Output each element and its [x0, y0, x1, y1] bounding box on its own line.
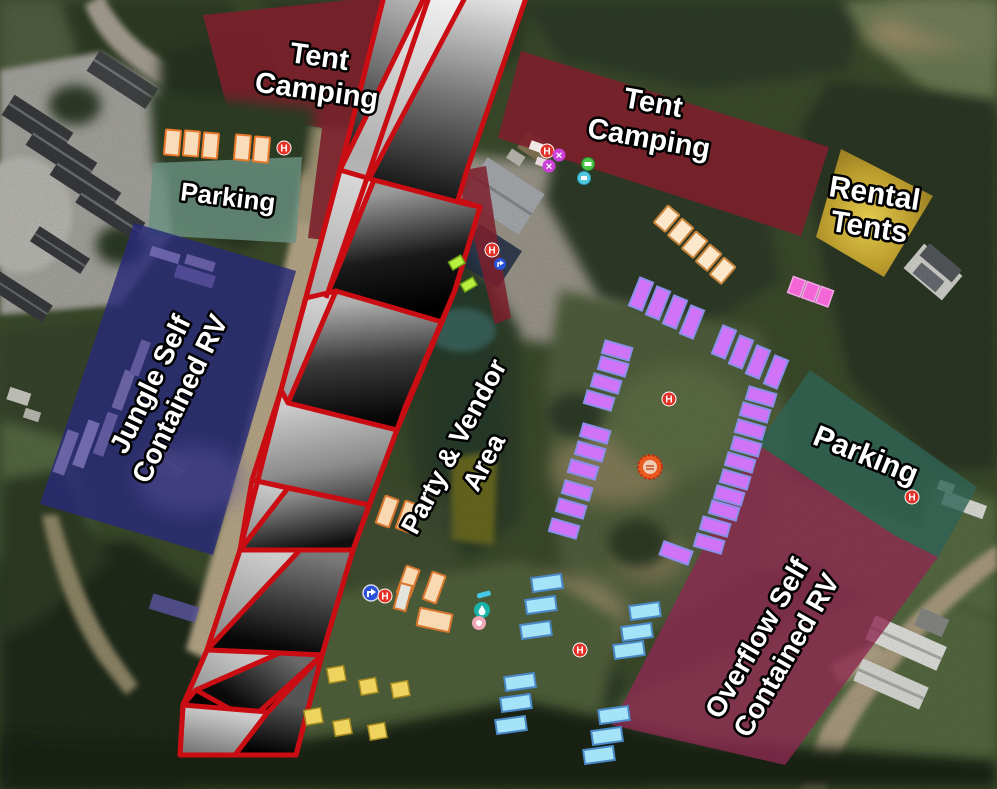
svg-text:H: H: [576, 646, 583, 657]
svg-text:H: H: [543, 147, 550, 158]
svg-text:H: H: [280, 144, 287, 155]
svg-text:✕: ✕: [545, 162, 553, 172]
svg-text:H: H: [381, 592, 388, 603]
svg-text:H: H: [488, 246, 495, 257]
svg-text:H: H: [665, 395, 672, 406]
svg-text:✕: ✕: [555, 151, 563, 161]
svg-text:H: H: [908, 493, 915, 504]
